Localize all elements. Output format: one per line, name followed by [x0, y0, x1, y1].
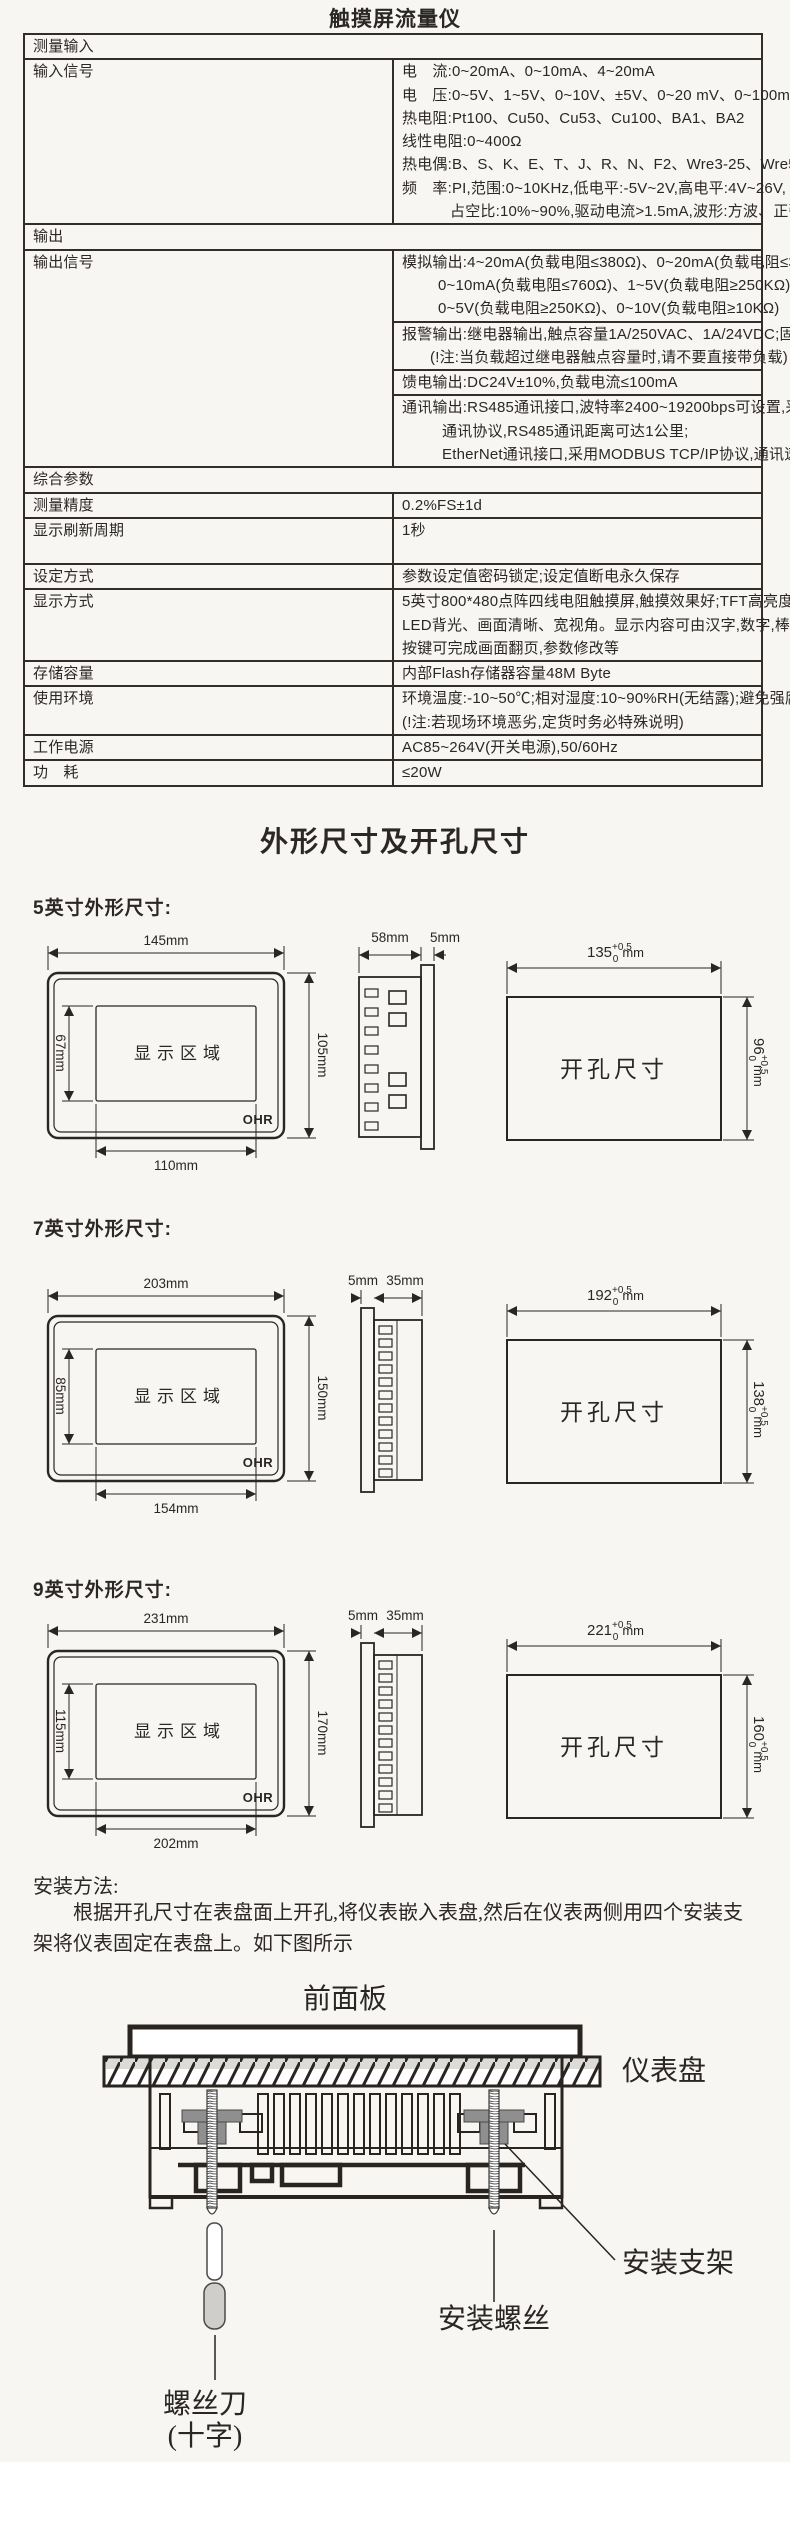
- row-label: 设定方式: [24, 564, 393, 589]
- dim-front-width: 145mm: [143, 933, 188, 948]
- dimension-lines: [507, 1304, 754, 1483]
- install-heading: 安装方法:: [33, 1870, 119, 1899]
- table-row: 测量精度 0.2%FS±1d: [24, 493, 762, 518]
- row-label: 显示刷新周期: [24, 518, 393, 564]
- screwdriver-label: 螺丝刀: [163, 2388, 247, 2420]
- dim-front-height: 150mm: [315, 1375, 330, 1420]
- display-area-label: 显示区域: [134, 1387, 226, 1406]
- row-value: 电 流:0~20mA、0~10mA、4~20mA 电 压:0~5V、1~5V、0…: [393, 59, 762, 224]
- section-label: 综合参数: [24, 467, 762, 492]
- row-value: 报警输出:继电器输出,触点容量1A/250VAC、1A/24VDC;固态继电器输…: [393, 322, 762, 371]
- row-value: 1秒: [393, 518, 762, 564]
- dim-cutout-width: 221+0.50mm: [587, 1620, 644, 1643]
- display-area-label: 显示区域: [134, 1722, 226, 1741]
- dimension-lines: [507, 961, 754, 1140]
- cutout-label: 开孔尺寸: [560, 1735, 668, 1760]
- dimension-lines: [507, 1639, 754, 1818]
- dim-cutout-width: 135+0.50mm: [587, 942, 644, 965]
- row-label: 显示方式: [24, 589, 393, 661]
- dim-front-width: 203mm: [143, 1276, 188, 1291]
- row-value: 模拟输出:4~20mA(负载电阻≤380Ω)、0~20mA(负载电阻≤380Ω)…: [393, 250, 762, 322]
- row-label: 输入信号: [24, 59, 393, 224]
- dim-display-width: 202mm: [153, 1836, 198, 1851]
- dim-cutout-height: 138+0.50mm: [746, 1381, 769, 1438]
- display-area-label: 显示区域: [134, 1044, 226, 1063]
- dim-front-height: 105mm: [315, 1032, 330, 1077]
- row-value: 参数设定值密码锁定;设定值断电永久保存: [393, 564, 762, 589]
- brand-logo: OHR: [243, 1112, 274, 1127]
- page-title: 触摸屏流量仪: [0, 3, 790, 33]
- instrument-panel-shape: [104, 2057, 600, 2086]
- table-row: 输出信号 模拟输出:4~20mA(负载电阻≤380Ω)、0~20mA(负载电阻≤…: [24, 250, 762, 322]
- table-section-row: 输出: [24, 224, 762, 249]
- screw-label: 安装螺丝: [438, 2303, 550, 2335]
- front-view-9in: 231mm 170mm 115mm 202mm 显示区域 OHR: [18, 1603, 368, 1853]
- front-view-5in: 145mm 105mm 67mm 110mm 显示区域 OHR: [18, 925, 368, 1175]
- side-body: [359, 965, 434, 1149]
- table-row: 存储容量 内部Flash存储器容量48M Byte: [24, 661, 762, 686]
- model-5in-heading: 5英寸外形尺寸:: [33, 893, 172, 920]
- side-view-7in: 5mm 35mm: [345, 1268, 485, 1518]
- dim-cutout-height: 160+0.50mm: [746, 1716, 769, 1773]
- cutout-view-9in: 开孔尺寸 221+0.50mm 160+0.50mm: [492, 1603, 772, 1853]
- side-body: [361, 1643, 422, 1827]
- table-row: 工作电源 AC85~264V(开关电源),50/60Hz: [24, 735, 762, 760]
- table-row: 使用环境 环境温度:-10~50℃;相对湿度:10~90%RH(无结露);避免强…: [24, 686, 762, 735]
- side-view-9in: 5mm 35mm: [345, 1603, 485, 1853]
- table-row: 显示刷新周期 1秒: [24, 518, 762, 564]
- table-row: 设定方式 参数设定值密码锁定;设定值断电永久保存: [24, 564, 762, 589]
- front-panel-label: 前面板: [303, 1983, 387, 2015]
- spec-table: 测量输入 输入信号 电 流:0~20mA、0~10mA、4~20mA 电 压:0…: [23, 33, 763, 787]
- row-value: 内部Flash存储器容量48M Byte: [393, 661, 762, 686]
- cutout-label: 开孔尺寸: [560, 1400, 668, 1425]
- cutout-view-5in: 开孔尺寸 135+0.50mm 96+0.50mm: [492, 925, 772, 1175]
- brand-logo: OHR: [243, 1790, 274, 1805]
- side-body: [361, 1308, 422, 1492]
- brand-logo: OHR: [243, 1455, 274, 1470]
- screwdriver-label-2: (十字): [168, 2420, 243, 2452]
- section-label: 测量输入: [24, 34, 762, 59]
- row-value: 0.2%FS±1d: [393, 493, 762, 518]
- dim-cutout-width: 192+0.50mm: [587, 1285, 644, 1308]
- dim-side-depth: 35mm: [386, 1273, 424, 1288]
- datasheet-page: 触摸屏流量仪 测量输入 输入信号 电 流:0~20mA、0~10mA、4~20m…: [0, 0, 790, 2523]
- dim-display-height: 115mm: [53, 1709, 68, 1753]
- model-7in-heading: 7英寸外形尺寸:: [33, 1214, 172, 1241]
- dim-front-width: 231mm: [143, 1611, 188, 1626]
- row-value: ≤20W: [393, 760, 762, 785]
- install-paragraph: 根据开孔尺寸在表盘面上开孔,将仪表嵌入表盘,然后在仪表两侧用四个安装支架将仪表固…: [33, 1898, 759, 1960]
- front-panel-shape: [130, 2027, 580, 2057]
- row-label: 测量精度: [24, 493, 393, 518]
- section-label: 输出: [24, 224, 762, 249]
- table-section-row: 综合参数: [24, 467, 762, 492]
- row-value: AC85~264V(开关电源),50/60Hz: [393, 735, 762, 760]
- row-value: 环境温度:-10~50℃;相对湿度:10~90%RH(无结露);避免强腐蚀气体。…: [393, 686, 762, 735]
- model-9in-heading: 9英寸外形尺寸:: [33, 1575, 172, 1602]
- row-label: 存储容量: [24, 661, 393, 686]
- dim-side-depth: 58mm: [371, 930, 409, 945]
- table-row: 功 耗 ≤20W: [24, 760, 762, 785]
- row-label: 功 耗: [24, 760, 393, 785]
- row-value: 5英寸800*480点阵四线电阻触摸屏,触摸效果好;TFT高亮度彩色图形液晶显示…: [393, 589, 762, 661]
- row-label: 使用环境: [24, 686, 393, 735]
- dim-display-height: 67mm: [53, 1034, 68, 1072]
- table-row: 显示方式 5英寸800*480点阵四线电阻触摸屏,触摸效果好;TFT高亮度彩色图…: [24, 589, 762, 661]
- bracket-label: 安装支架: [622, 2247, 734, 2279]
- row-value: 馈电输出:DC24V±10%,负载电流≤100mA: [393, 370, 762, 395]
- cutout-view-7in: 开孔尺寸 192+0.50mm 138+0.50mm: [492, 1268, 772, 1518]
- row-value: 通讯输出:RS485通讯接口,波特率2400~19200bps可设置,采用标准M…: [393, 395, 762, 467]
- dim-front-height: 170mm: [315, 1710, 330, 1755]
- dim-side-depth: 35mm: [386, 1608, 424, 1623]
- table-row: 输入信号 电 流:0~20mA、0~10mA、4~20mA 电 压:0~5V、1…: [24, 59, 762, 224]
- dim-display-width: 110mm: [154, 1158, 198, 1173]
- install-diagram: 前面板 仪表盘: [0, 1972, 790, 2462]
- cutout-label: 开孔尺寸: [560, 1057, 668, 1082]
- instrument-panel-label: 仪表盘: [622, 2055, 706, 2087]
- dimensions-section-title: 外形尺寸及开孔尺寸: [0, 820, 790, 860]
- dimension-lines: [359, 947, 446, 973]
- dim-side-flange: 5mm: [348, 1273, 378, 1288]
- dim-side-flange: 5mm: [430, 930, 460, 945]
- bracket-leader-line: [505, 2144, 615, 2260]
- page-footer-blank: [0, 2462, 790, 2523]
- dim-side-flange: 5mm: [348, 1608, 378, 1623]
- row-label: 工作电源: [24, 735, 393, 760]
- screwdriver: [204, 2223, 225, 2380]
- front-view-7in: 203mm 150mm 85mm 154mm 显示区域 OHR: [18, 1268, 368, 1518]
- dim-cutout-height: 96+0.50mm: [746, 1038, 769, 1087]
- dim-display-width: 154mm: [153, 1501, 198, 1516]
- dim-display-height: 85mm: [53, 1377, 68, 1415]
- side-view-5in: 58mm 5mm: [345, 925, 485, 1175]
- row-label: 输出信号: [24, 250, 393, 468]
- table-section-row: 测量输入: [24, 34, 762, 59]
